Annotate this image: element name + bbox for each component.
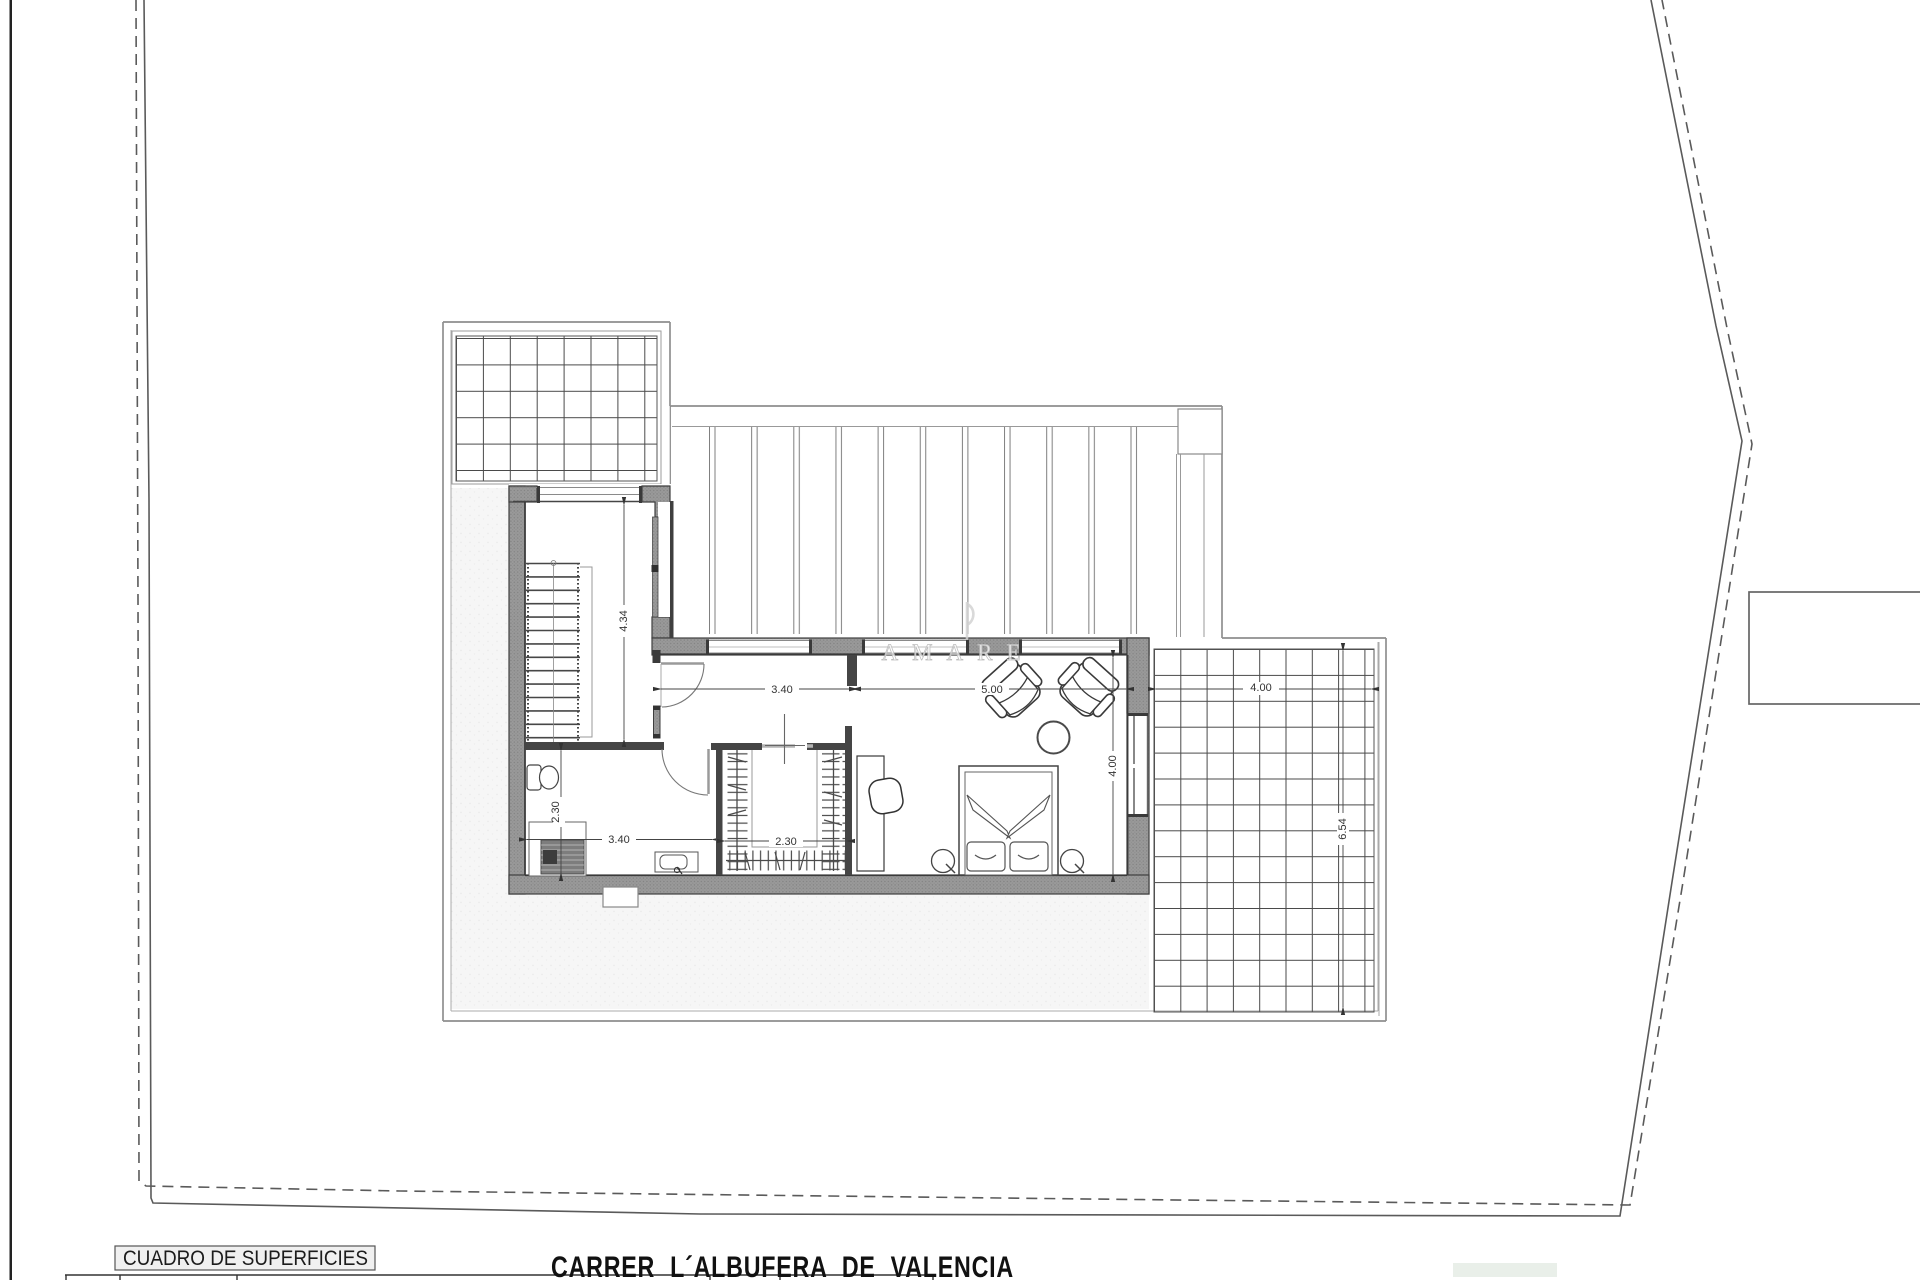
- svg-text:3.40: 3.40: [608, 834, 629, 846]
- svg-text:2.30: 2.30: [775, 836, 796, 848]
- svg-text:6.54: 6.54: [1337, 818, 1349, 839]
- svg-text:4.34: 4.34: [618, 610, 630, 631]
- svg-text:5.00: 5.00: [981, 684, 1002, 696]
- svg-text:2.30: 2.30: [550, 801, 562, 822]
- svg-text:CARRER L´ALBUFERA DE VALENCIA: CARRER L´ALBUFERA DE VALENCIA: [551, 1251, 1014, 1280]
- svg-text:4.00: 4.00: [1107, 755, 1119, 776]
- svg-text:CUADRO DE SUPERFICIES: CUADRO DE SUPERFICIES: [123, 1247, 368, 1270]
- svg-text:AMARE: AMARE: [881, 640, 1034, 665]
- svg-text:4.00: 4.00: [1250, 682, 1271, 694]
- svg-text:3.40: 3.40: [771, 684, 792, 696]
